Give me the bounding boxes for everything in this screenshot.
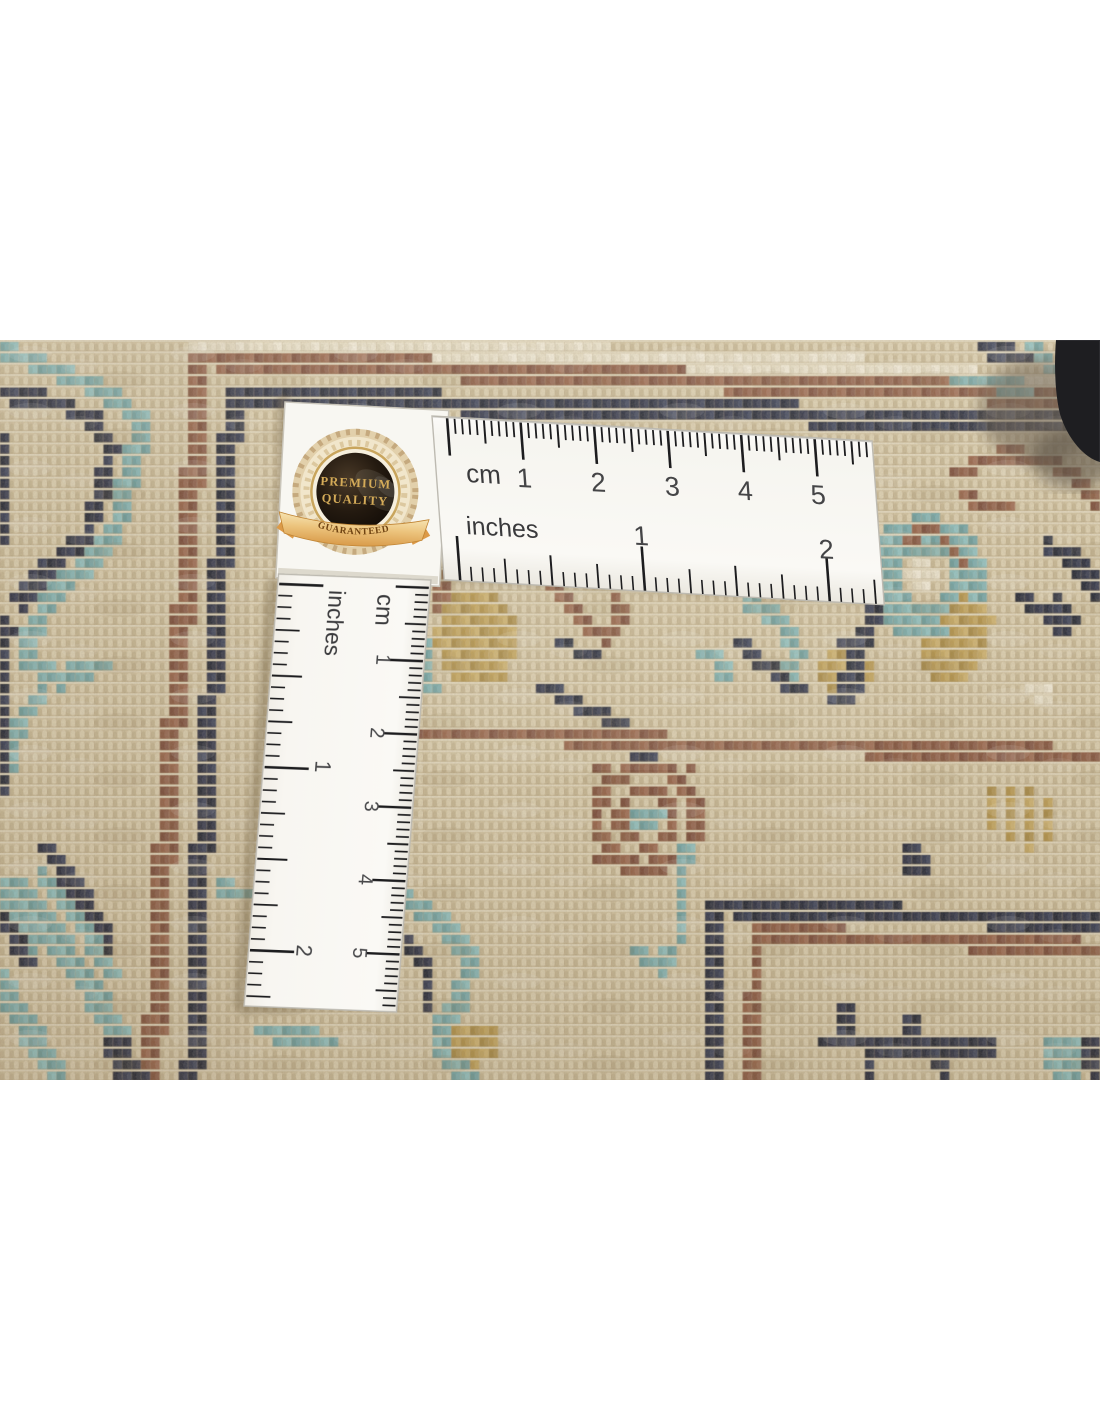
svg-text:1: 1	[516, 462, 533, 494]
svg-text:1: 1	[371, 654, 394, 666]
svg-text:cm: cm	[369, 594, 399, 627]
svg-text:2: 2	[291, 944, 317, 957]
svg-text:inches: inches	[319, 590, 350, 657]
svg-text:2: 2	[590, 466, 607, 498]
svg-text:inches: inches	[465, 512, 539, 544]
svg-text:4: 4	[737, 474, 754, 506]
svg-text:5: 5	[347, 947, 370, 959]
svg-text:cm: cm	[465, 458, 502, 490]
svg-text:5: 5	[810, 479, 827, 511]
svg-text:1: 1	[310, 760, 336, 773]
svg-text:4: 4	[353, 874, 376, 886]
svg-text:2: 2	[818, 533, 835, 565]
svg-text:1: 1	[632, 520, 649, 552]
svg-text:2: 2	[365, 727, 388, 739]
svg-text:3: 3	[359, 800, 382, 812]
svg-text:3: 3	[664, 470, 681, 502]
